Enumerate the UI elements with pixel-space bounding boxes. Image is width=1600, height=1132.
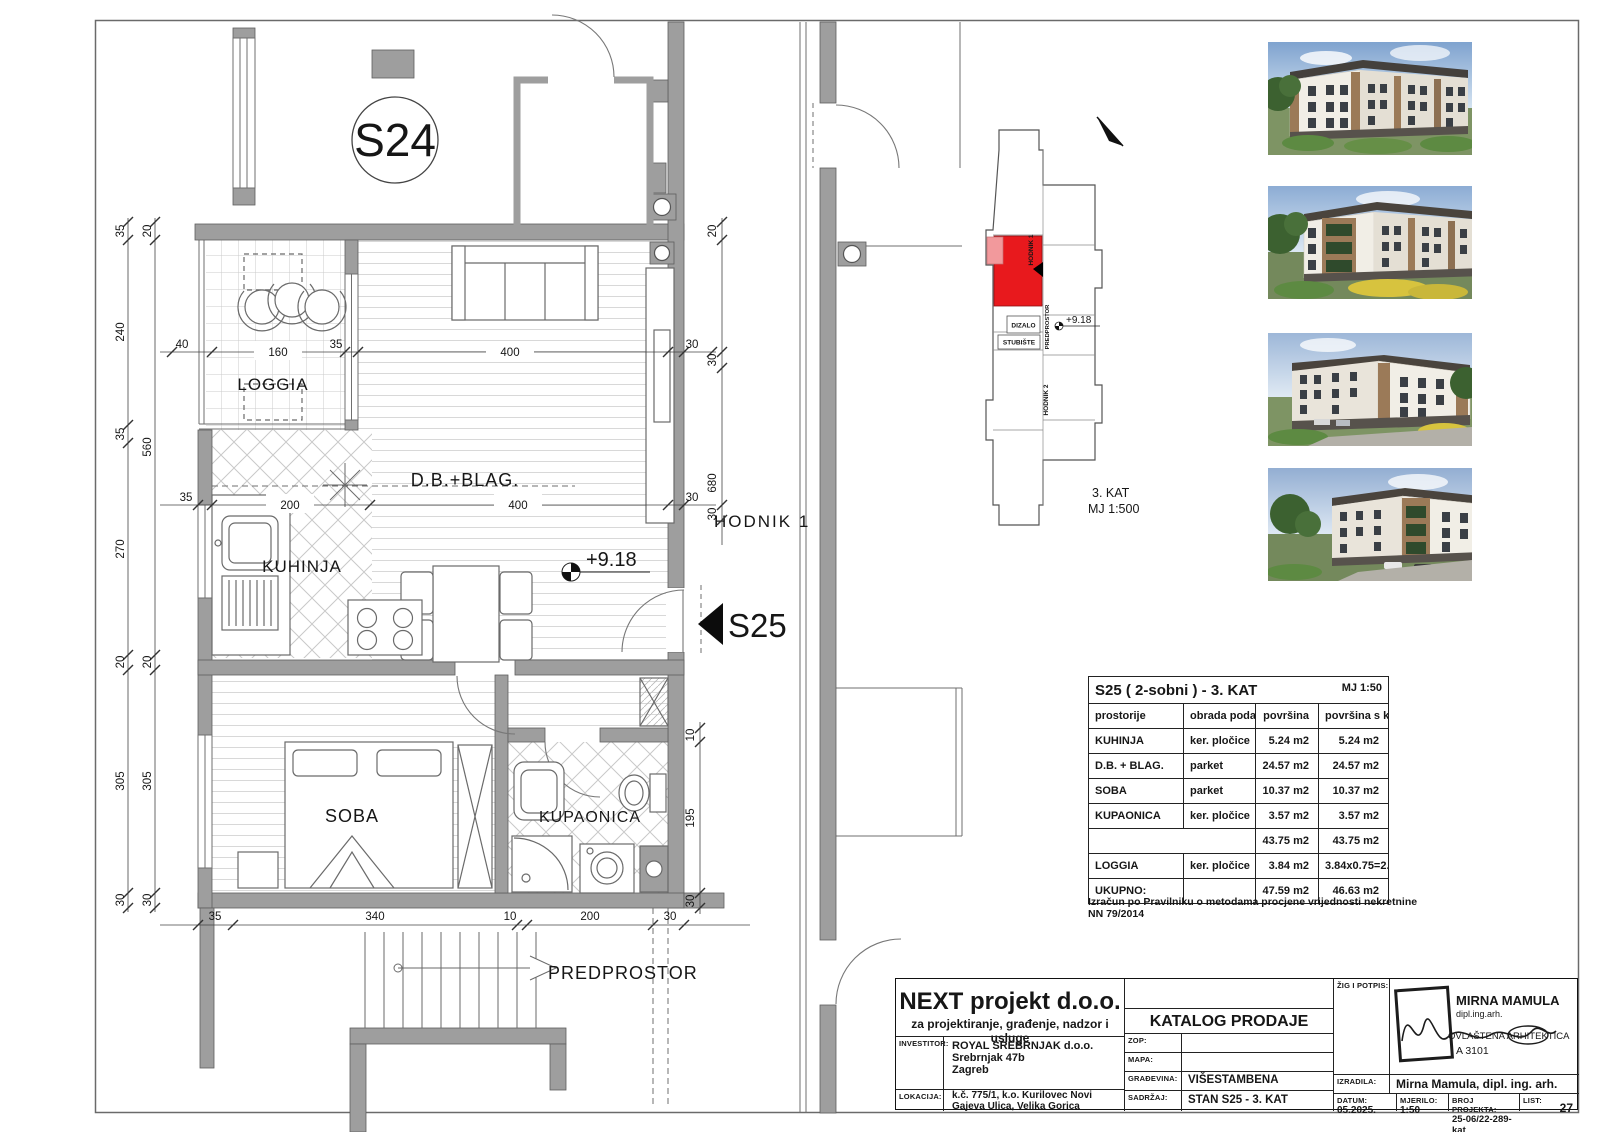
highlighted-loggia	[987, 237, 1003, 264]
col-header: površina	[1256, 704, 1319, 729]
building	[1292, 355, 1470, 431]
building-render-2	[1268, 186, 1472, 299]
mapa-label: MAPA:	[1125, 1053, 1181, 1064]
svg-text:20: 20	[115, 656, 127, 669]
location-label: LOKACIJA:	[896, 1090, 943, 1101]
room-label-hall: PREDPROSTOR	[548, 963, 698, 983]
svg-text:400: 400	[500, 347, 519, 359]
table-row: D.B. + BLAG.parket 24.57 m224.57 m2	[1089, 754, 1389, 779]
svg-text:MIRNA MAMULA: MIRNA MAMULA	[1456, 993, 1560, 1008]
table-title-row: S25 ( 2-sobni ) - 3. KAT MJ 1:50	[1089, 677, 1389, 704]
svg-text:dipl.ing.arh.: dipl.ing.arh.	[1456, 1009, 1503, 1019]
svg-text:160: 160	[268, 347, 287, 359]
room-label-living: D.B.+BLAG.	[411, 470, 520, 490]
wardrobe	[458, 745, 492, 888]
svg-text:OVLAŠTENA ARHITEKTICA: OVLAŠTENA ARHITEKTICA	[1448, 1031, 1570, 1042]
investor-label: INVESTITOR:	[896, 1037, 943, 1048]
keyplan-hodnik1: HODNIK 1	[1028, 234, 1035, 265]
zop-label: ZOP:	[1125, 1034, 1181, 1045]
table-header-row: prostorije obrada poda površina površina…	[1089, 704, 1389, 729]
toilet	[619, 774, 666, 812]
svg-text:30: 30	[685, 895, 697, 908]
date-value: 05.2025.	[1334, 1105, 1396, 1116]
content-value: STAN S25 - 3. KAT	[1182, 1091, 1333, 1106]
svg-text:35: 35	[209, 911, 222, 923]
svg-text:35: 35	[330, 339, 343, 351]
svg-text:A 3101: A 3101	[1456, 1045, 1489, 1057]
room-label-bathroom: KUPAONICA	[539, 809, 641, 826]
neighbour-door-leaf	[548, 72, 614, 84]
entry-arrow	[698, 603, 723, 645]
keyplan-hodnik2: HODNIK 2	[1043, 384, 1050, 415]
svg-text:30: 30	[707, 508, 719, 521]
scale-label: MJERILO:	[1397, 1094, 1448, 1105]
title-block: NEXT projekt d.o.o. za projektiranje, gr…	[895, 978, 1578, 1110]
svg-text:560: 560	[142, 437, 154, 456]
nightstand	[238, 852, 278, 888]
area-table: S25 ( 2-sobni ) - 3. KAT MJ 1:50 prostor…	[1088, 676, 1389, 904]
key-plan: DIZALO STUBIŠTE HODNIK 1 PREDPROSTOR HOD…	[986, 117, 1139, 525]
table-subtotal-row: 43.75 m243.75 m2	[1089, 829, 1389, 854]
content-label: SADRŽAJ:	[1125, 1091, 1181, 1102]
unit-label: S24	[354, 114, 436, 166]
stamp-label: ŽIG I POTPIS:	[1334, 979, 1389, 990]
room-label-loggia: LOGGIA	[237, 375, 308, 394]
svg-text:10: 10	[504, 911, 517, 923]
table-row: LOGGIAker. pločice 3.84 m23.84x0.75=2.88…	[1089, 854, 1389, 879]
stamp-signature: MIRNA MAMULA dipl.ing.arh. OVLAŠTENA ARH…	[1390, 979, 1578, 1072]
svg-text:+9.18: +9.18	[1066, 315, 1092, 326]
investor-value: ROYAL SREBRNJAK d.o.o. Srebrnjak 47b Zag…	[943, 1036, 1124, 1089]
svg-text:35: 35	[180, 492, 193, 504]
tv-shelf	[646, 268, 674, 523]
svg-text:35: 35	[115, 225, 127, 238]
sofa	[452, 246, 598, 320]
catalog-sheet: S24 LOGGIA D.B.+BLAG. KUHINJA SOBA KUPAO…	[0, 0, 1600, 1132]
elevation-label: +9.18	[586, 549, 637, 571]
svg-text:20: 20	[707, 225, 719, 238]
keyplan-scale: MJ 1:500	[1088, 502, 1139, 516]
stove	[348, 600, 422, 655]
svg-text:30: 30	[707, 354, 719, 367]
project-no-value: 25-06/22-289-kat	[1449, 1114, 1519, 1132]
svg-text:200: 200	[280, 500, 299, 512]
building-render-1	[1268, 42, 1472, 155]
company-name: NEXT projekt d.o.o.	[896, 988, 1124, 1016]
svg-text:30: 30	[142, 894, 154, 907]
col-header: površina s koef.	[1319, 704, 1389, 729]
neighbour-room	[517, 80, 650, 228]
building-label: GRAĐEVINA:	[1125, 1072, 1181, 1083]
keyplan-predprostor: PREDPROSTOR	[1045, 304, 1051, 349]
svg-text:240: 240	[115, 322, 127, 341]
room-label-corridor: HODNIK 1	[714, 512, 810, 531]
mapa-value	[1181, 1052, 1333, 1071]
svg-text:200: 200	[580, 911, 599, 923]
svg-text:195: 195	[685, 808, 697, 827]
document-type: KATALOG PRODAJE	[1125, 1009, 1333, 1034]
location-value: k.č. 775/1, k.o. Kurilovec Novi Gajeva U…	[943, 1089, 1124, 1111]
svg-text:30: 30	[686, 492, 699, 504]
shaft	[640, 846, 668, 892]
stairs	[365, 932, 556, 1028]
svg-text:10: 10	[685, 729, 697, 742]
room-label-kitchen: KUHINJA	[262, 557, 342, 576]
building-value: VIŠESTAMBENA	[1182, 1072, 1333, 1086]
building-render-3	[1268, 333, 1472, 446]
col-header: obrada poda	[1184, 704, 1256, 729]
made-by-value: Mirna Mamula, dipl. ing. arh.	[1390, 1075, 1579, 1091]
closet	[640, 678, 668, 726]
svg-text:35: 35	[115, 428, 127, 441]
svg-text:305: 305	[115, 771, 127, 790]
table-row: KUPAONICAker. pločice 3.57 m23.57 m2	[1089, 804, 1389, 829]
made-by-label: IZRADILA:	[1334, 1075, 1389, 1086]
keyplan-floor: 3. KAT	[1092, 486, 1130, 500]
room-label-bedroom: SOBA	[325, 806, 379, 826]
svg-text:30: 30	[115, 894, 127, 907]
table-row: SOBAparket 10.37 m210.37 m2	[1089, 779, 1389, 804]
svg-text:305: 305	[142, 771, 154, 790]
building	[1332, 488, 1472, 566]
col-header: prostorije	[1089, 704, 1184, 729]
north-arrow	[1097, 117, 1123, 146]
svg-text:20: 20	[142, 656, 154, 669]
table-scale: MJ 1:50	[1342, 682, 1382, 694]
table-note: Izračun po Pravilniku o metodama procjen…	[1088, 896, 1418, 920]
svg-text:340: 340	[365, 911, 384, 923]
svg-text:30: 30	[664, 911, 677, 923]
shower	[512, 836, 572, 892]
building	[1304, 202, 1472, 282]
building	[1290, 60, 1468, 140]
svg-text:20: 20	[142, 225, 154, 238]
unit-pointer-label: S25	[728, 607, 787, 644]
washing-machine	[580, 844, 634, 893]
project-no-label: BROJ PROJEKTA:	[1449, 1094, 1519, 1114]
svg-text:680: 680	[707, 473, 719, 492]
stamp-area: MIRNA MAMULA dipl.ing.arh. OVLAŠTENA ARH…	[1389, 979, 1579, 1074]
table-row: KUHINJAker. pločice 5.24 m25.24 m2	[1089, 729, 1389, 754]
zop-value	[1181, 1033, 1333, 1052]
svg-text:400: 400	[508, 500, 527, 512]
svg-text:40: 40	[176, 339, 189, 351]
date-label: DATUM:	[1334, 1094, 1396, 1105]
scale-value: 1:50	[1397, 1105, 1448, 1116]
building-render-4	[1268, 468, 1472, 581]
svg-text:30: 30	[686, 339, 699, 351]
keyplan-stubiste: STUBIŠTE	[1003, 338, 1036, 347]
keyplan-dizalo: DIZALO	[1011, 323, 1035, 330]
table-title: S25 ( 2-sobni ) - 3. KAT	[1095, 682, 1257, 699]
svg-text:270: 270	[115, 539, 127, 558]
